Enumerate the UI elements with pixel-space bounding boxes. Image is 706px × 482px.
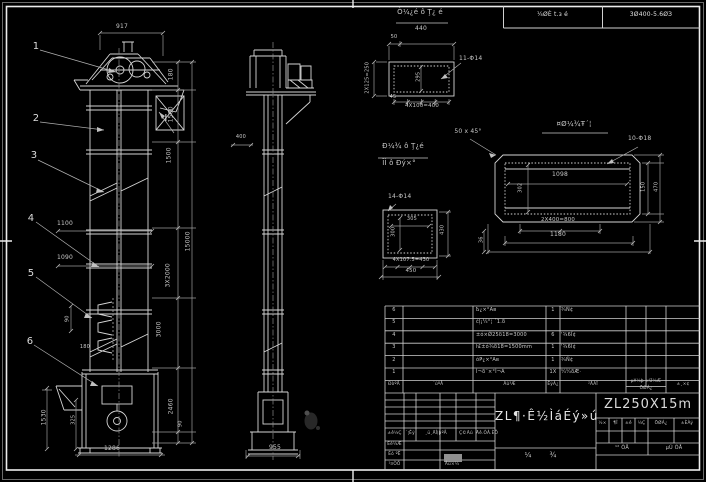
dim-325: 325	[71, 400, 77, 440]
detail-a-dim-45: 45	[386, 95, 400, 101]
detail-b-title: ¤Ø¼¾Ŧ´¦	[538, 121, 610, 129]
dim-180b: 180	[74, 345, 96, 351]
detail-b-dim-302: 302	[518, 168, 524, 208]
drawing-title: ZL¶·Ê½ÌáÉý»ú	[495, 410, 596, 423]
detail-c-dim-305: 305	[394, 217, 430, 223]
bom-header-qty: ÊýÁ¿	[545, 383, 561, 388]
detail-a-dim-295: 295	[416, 57, 422, 97]
bom-row-no: 6	[385, 308, 403, 314]
bom-header-note: ±¸×¢	[666, 383, 700, 388]
process-label: ¹¤ÒÕ	[385, 463, 404, 468]
detail-b-chamfer: 50 x 45°	[445, 129, 491, 136]
bom-row-material: ¾Ñ¢	[561, 358, 625, 364]
bom-row-qty: 1X	[546, 370, 560, 376]
bom-row-no: 2	[385, 358, 403, 364]
bom-header-no: ÐòºÅ	[385, 383, 403, 388]
dim-90-left: 90	[65, 299, 71, 339]
bom-header-weight-2: ÖØÁ¿	[626, 387, 666, 392]
dim-1100: 1100	[50, 221, 80, 228]
stage-cell-4: ¼Ç	[635, 422, 648, 427]
dimension-lines	[42, 23, 664, 459]
top-bar-reducer-cell: 3Ø400-5.6ØЗ	[602, 12, 700, 19]
detail-b-dim-1098: 1098	[540, 172, 580, 179]
balloon-3: 3	[28, 150, 40, 161]
dimension-ticks	[45, 31, 662, 458]
detail-a-dim-50: 50	[386, 35, 402, 41]
bom-row-name: ŀ£±ó¾δ18=1500mm	[476, 345, 546, 351]
dim-15000: 15000	[186, 221, 193, 261]
detail-c-holes-label: 14-Φ14	[388, 194, 432, 201]
stage-cell-2: ¶Î	[609, 422, 622, 427]
drawing-model: ZL250X15m	[598, 398, 698, 412]
bom-row-name: ċļ¡¼°¦ ´1.δ	[476, 320, 546, 326]
design-label: Éè¼Æ	[385, 443, 404, 448]
rev-date-label: Äê.ÔÂ.ÈÕ	[476, 432, 495, 437]
stamp-glyph-1: ¼	[522, 452, 534, 460]
bom-row-material: ¾Ñ¢	[561, 308, 625, 314]
detail-b-holes-label: 10-Φ18	[628, 136, 670, 143]
detail-b-dim-150: 150	[641, 167, 647, 207]
bom-row-name: Ì¬δ¨×°Ì¬Ã	[476, 370, 546, 376]
stage-cell-1: ½×	[596, 422, 609, 427]
cad-drawing: ¼ØÈ t.з é 3Ø400-5.6ØЗ 917 1 2 3 4 5 6 Ⅰ …	[0, 0, 706, 482]
detail-b-dim-2x400: 2X400=800	[528, 218, 588, 224]
bom-row-no: 4	[385, 333, 403, 339]
balloon-6: 6	[24, 336, 36, 347]
balloon-1: 1	[30, 41, 42, 52]
top-bar-motor-cell: ¼ØÈ t.з é	[503, 12, 602, 19]
sheets-total-label: ¹² ÕÅ	[596, 446, 648, 452]
detail-c-title-1: Ð¼¾ ô Ţ¿é	[374, 143, 432, 151]
detail-a-dim-left: 2X125=250	[365, 53, 371, 103]
detail-c-dim-450: 450	[392, 269, 430, 275]
bom-row-name: Ҍ¿×°Ав	[476, 308, 546, 314]
dim-400: 400	[228, 135, 254, 141]
dim-1500a: 1500	[169, 94, 176, 134]
dim-2460: 2460	[169, 386, 176, 426]
detail-b-dim-470: 470	[654, 167, 660, 207]
dim-3x2000: 3X2000	[166, 253, 173, 297]
side-view-linework	[246, 42, 316, 460]
bom-row-material: '¾6Ï¢	[561, 333, 625, 339]
bom-header-code: ´úºÅ	[403, 383, 473, 388]
stage-cell-3: ±ê	[622, 422, 635, 427]
dim-180: 180	[169, 54, 176, 94]
bom-row-no: 3	[385, 345, 403, 351]
dim-3000: 3000	[157, 309, 164, 349]
smudge-mark	[305, 411, 321, 431]
bom-row-name: óҎ¿×°Ав	[476, 358, 546, 364]
bom-header-weight-1: µ¥¼þ ×Ü¼Æ	[626, 380, 666, 385]
balloon-5: 5	[25, 268, 37, 279]
detail-b-dim-1180: 1180	[538, 232, 578, 239]
balloon-2: 2	[30, 113, 42, 124]
detail-a-dim-440: 440	[400, 26, 442, 33]
detail-c-title-2: Ĭİ ô Ðý×°	[370, 160, 428, 168]
sheet-no-label: µÚ ÕÅ	[648, 446, 700, 452]
stamp-glyph-2: ¾	[547, 452, 559, 460]
bom-row-name: ±ó×Ǿ25δ18=3000	[476, 333, 546, 339]
detail-b-dim-36: 36	[479, 220, 485, 260]
approve-label: Åú×¼	[440, 463, 464, 468]
detail-a-title: Ò¼¿é ô Ţ¿ é	[390, 9, 450, 17]
detail-a-holes-label: 11-Φ14	[459, 56, 499, 63]
rev-doc-label: ¸ü¸ÄÎļþºÅ	[416, 432, 456, 437]
dim-955: 955	[253, 445, 297, 452]
dim-1286: 1286	[92, 446, 132, 453]
check-label: Éó ºË	[385, 453, 404, 458]
scale-label: ±ÈÀý	[674, 422, 700, 427]
dim-1530: 1530	[42, 397, 49, 437]
dim-917: 917	[100, 24, 144, 31]
detail-c-dim-430: 430	[440, 210, 446, 250]
bom-header-material: ²ÄÁÏ	[560, 383, 626, 388]
bom-row-material: '¾6Ï¢	[561, 345, 625, 351]
highlighted-cell	[444, 454, 462, 462]
bom-row-qty: 1	[546, 345, 560, 351]
bom-row-qty: 1	[546, 358, 560, 364]
dim-1090: 1090	[50, 255, 80, 262]
bom-row-material: ¼¼δÆ·	[561, 370, 625, 376]
bom-row-qty: 1	[546, 308, 560, 314]
detail-c-dim-300: 300	[391, 212, 397, 252]
detail-a-dim-4x100: 4X100=400	[396, 104, 448, 110]
dim-90-right: 90	[178, 404, 184, 444]
rev-count-label: ´¦Êý	[404, 432, 416, 437]
weight-label: ÖØÁ¿	[648, 422, 674, 427]
bom-row-qty: 6	[546, 333, 560, 339]
rev-sign-label: Ç©Ãû	[456, 432, 476, 437]
bom-header-name: Ãû³Æ	[473, 383, 546, 388]
dim-1500b: 1500	[167, 135, 174, 175]
rev-mark-label: ±ê¼Ç	[385, 432, 404, 437]
bom-row-no: 1	[385, 370, 403, 376]
bom-row-no: 5	[385, 320, 403, 326]
detail-c-dim-bottom: 4X107.5=430	[382, 258, 440, 264]
balloon-4: 4	[25, 213, 37, 224]
